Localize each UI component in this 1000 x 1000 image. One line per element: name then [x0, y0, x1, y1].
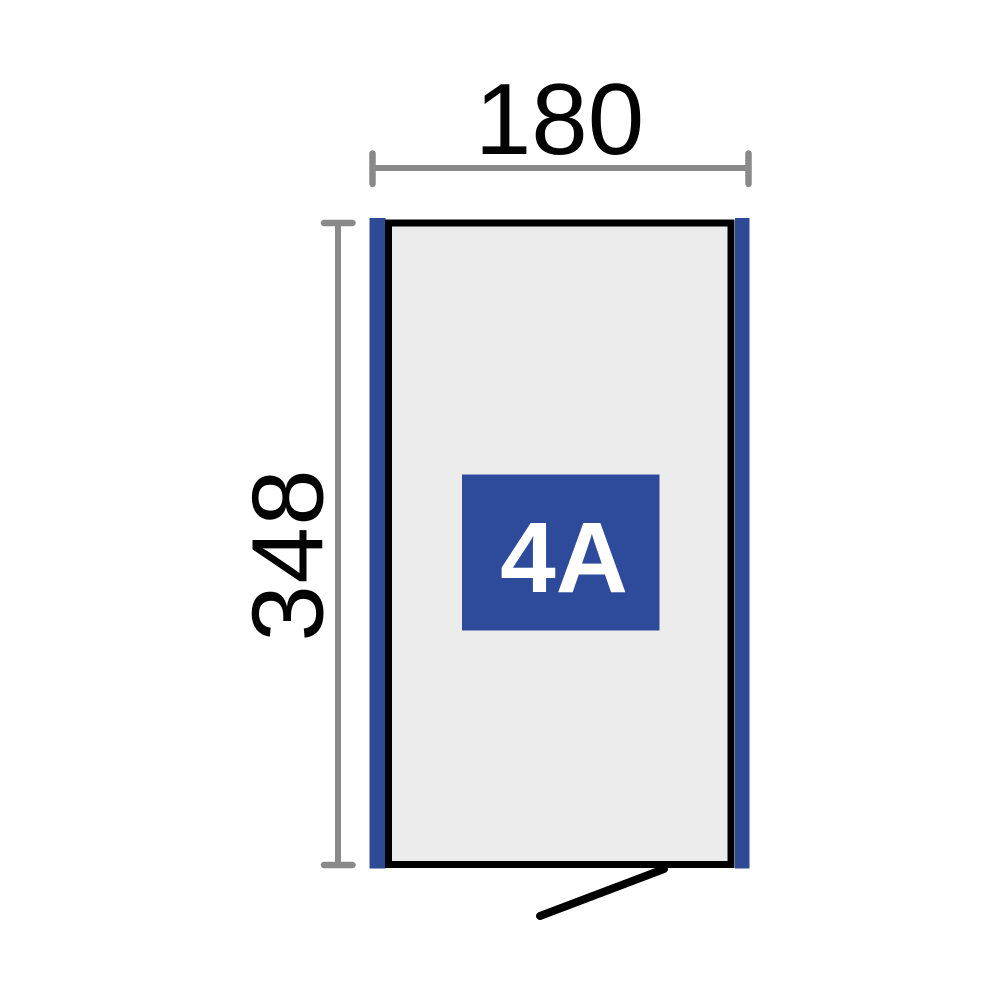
svg-text:348: 348 [231, 468, 345, 642]
svg-text:180: 180 [475, 62, 644, 176]
svg-text:4A: 4A [500, 502, 628, 614]
